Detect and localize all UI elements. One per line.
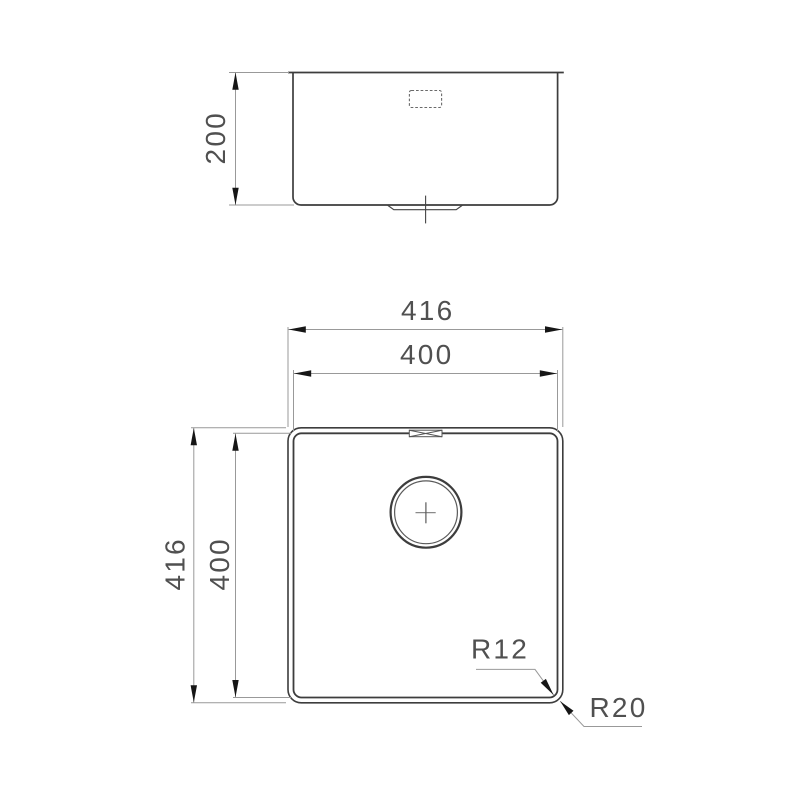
svg-text:R20: R20 <box>590 692 648 723</box>
svg-text:400: 400 <box>400 339 453 370</box>
svg-text:416: 416 <box>159 537 190 590</box>
svg-text:200: 200 <box>200 111 231 164</box>
svg-text:416: 416 <box>401 295 454 326</box>
svg-text:R12: R12 <box>471 634 529 665</box>
svg-text:400: 400 <box>204 537 235 590</box>
